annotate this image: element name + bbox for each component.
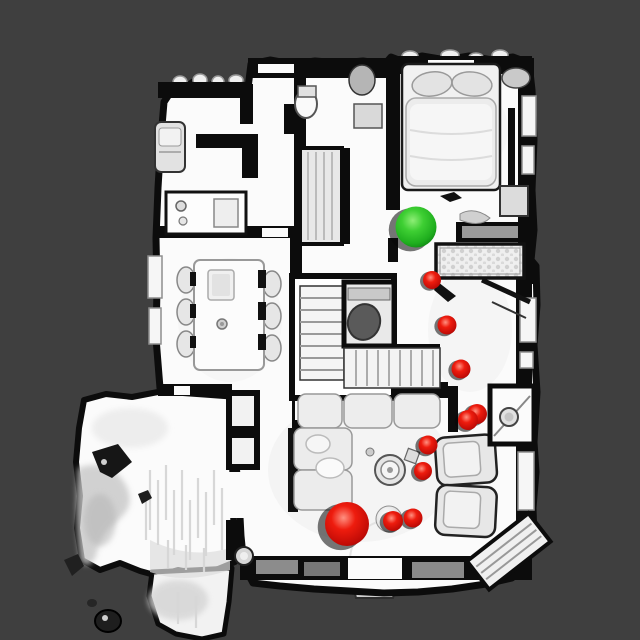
scene-viewport[interactable]: [0, 0, 640, 640]
floor-pot: [235, 547, 253, 565]
floorplan-canvas: [0, 0, 640, 640]
nightstand: [500, 186, 528, 216]
armchair-2: [435, 484, 498, 537]
wall-unit-knob: [490, 386, 534, 444]
dining-room: [177, 260, 281, 370]
garage-wing: [64, 390, 235, 639]
